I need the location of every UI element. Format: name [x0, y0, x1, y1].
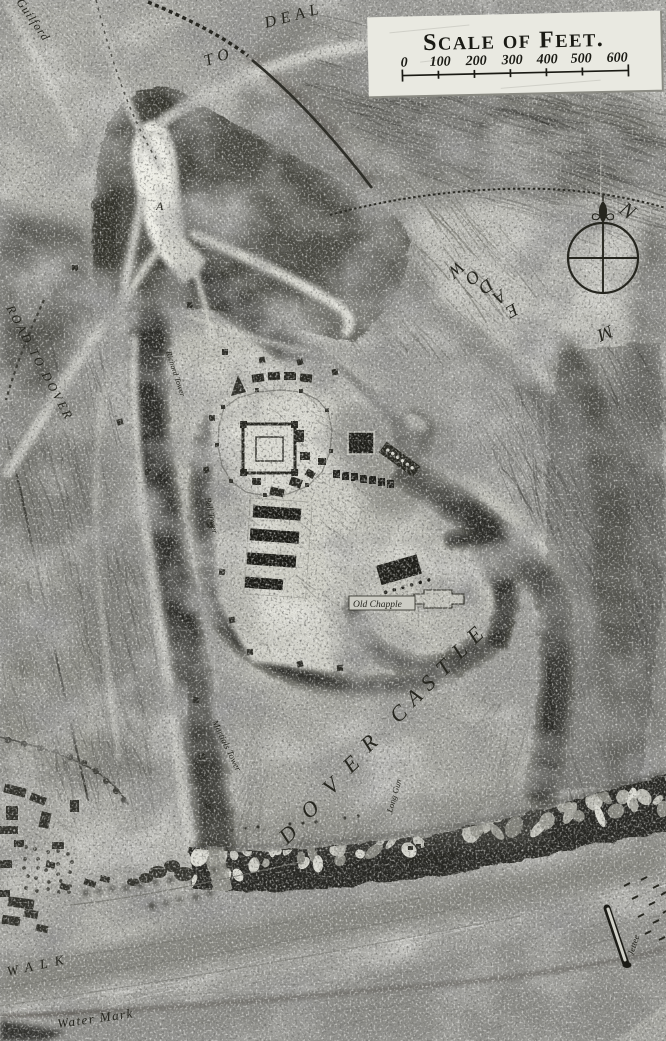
svg-text:100: 100: [429, 54, 450, 69]
svg-text:600: 600: [606, 50, 627, 65]
svg-text:200: 200: [464, 54, 486, 69]
svg-text:0: 0: [401, 55, 408, 70]
svg-text:500: 500: [570, 51, 591, 66]
svg-text:300: 300: [500, 53, 522, 68]
svg-text:Old Chapple: Old Chapple: [353, 600, 402, 610]
svg-text:400: 400: [535, 52, 557, 67]
svg-text:A: A: [155, 199, 164, 213]
